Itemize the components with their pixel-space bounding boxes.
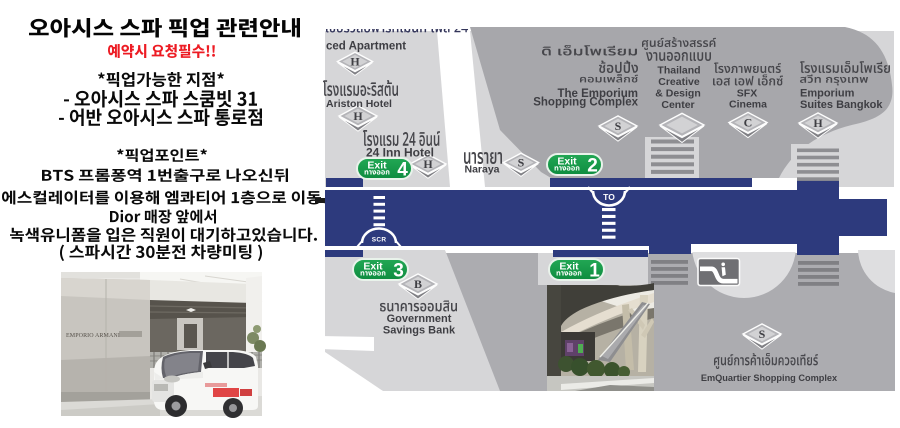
svg-text:Ariston Hotel: Ariston Hotel — [326, 98, 392, 110]
svg-text:Emporium: Emporium — [800, 87, 855, 99]
svg-text:Exit: Exit — [557, 156, 577, 168]
svg-text:Creative: Creative — [658, 76, 700, 88]
svg-text:Cinema: Cinema — [729, 99, 767, 111]
svg-text:2: 2 — [587, 156, 598, 177]
svg-text:& Design: & Design — [655, 87, 701, 99]
svg-text:24 Inn Hotel: 24 Inn Hotel — [366, 146, 434, 160]
svg-text:S: S — [759, 327, 766, 341]
svg-text:SCR: SCR — [372, 237, 387, 244]
svg-text:H: H — [350, 55, 360, 69]
svg-text:ced Apartment: ced Apartment — [326, 41, 406, 53]
svg-text:Naraya: Naraya — [464, 164, 499, 176]
svg-text:S: S — [615, 119, 622, 133]
svg-text:Center: Center — [661, 99, 694, 111]
svg-text:Suites Bangkok: Suites Bangkok — [800, 99, 883, 111]
svg-text:Thailand: Thailand — [657, 65, 700, 77]
svg-text:H: H — [353, 109, 363, 123]
svg-text:Exit: Exit — [367, 160, 387, 172]
svg-text:Exit: Exit — [559, 261, 579, 273]
svg-text:Exit: Exit — [363, 261, 383, 273]
svg-text:H: H — [813, 116, 823, 130]
svg-text:SFX: SFX — [737, 87, 757, 99]
svg-text:EMPORIO: EMPORIO — [66, 333, 94, 339]
svg-text:EmQuartier Shopping Complex: EmQuartier Shopping Complex — [701, 373, 838, 383]
svg-text:4: 4 — [397, 160, 408, 181]
svg-text:Shopping Complex: Shopping Complex — [533, 96, 638, 108]
svg-text:S: S — [518, 156, 525, 170]
svg-text:Government: Government — [387, 313, 452, 325]
svg-text:Savings Bank: Savings Bank — [383, 325, 456, 337]
svg-text:TO: TO — [603, 192, 615, 202]
svg-text:1: 1 — [589, 261, 600, 282]
svg-text:ARMANI: ARMANI — [95, 333, 120, 339]
svg-text:B: B — [414, 277, 422, 291]
svg-text:3: 3 — [393, 261, 404, 282]
svg-text:C: C — [744, 116, 753, 130]
